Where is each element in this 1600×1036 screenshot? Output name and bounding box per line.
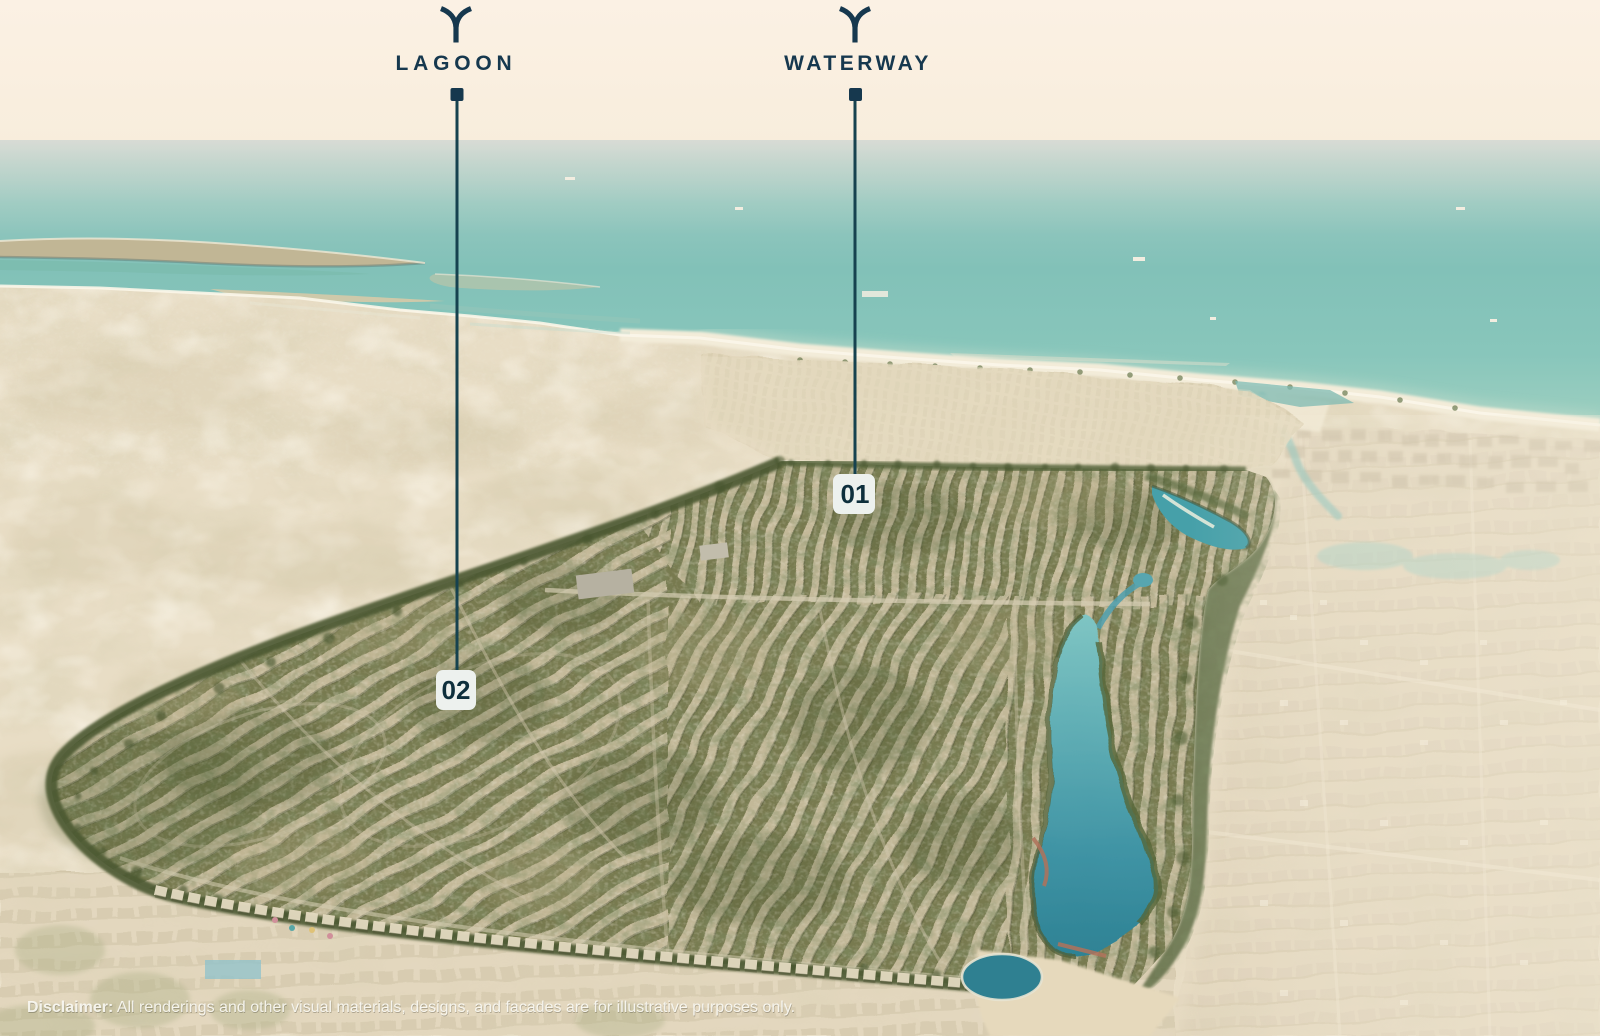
svg-text:WATERWAY: WATERWAY [784,52,932,75]
svg-text:LAGOON: LAGOON [396,52,517,75]
svg-text:02: 02 [442,675,471,705]
svg-text:01: 01 [841,479,870,509]
svg-text:Disclaimer: All renderings and: Disclaimer: All renderings and other vis… [27,999,795,1016]
